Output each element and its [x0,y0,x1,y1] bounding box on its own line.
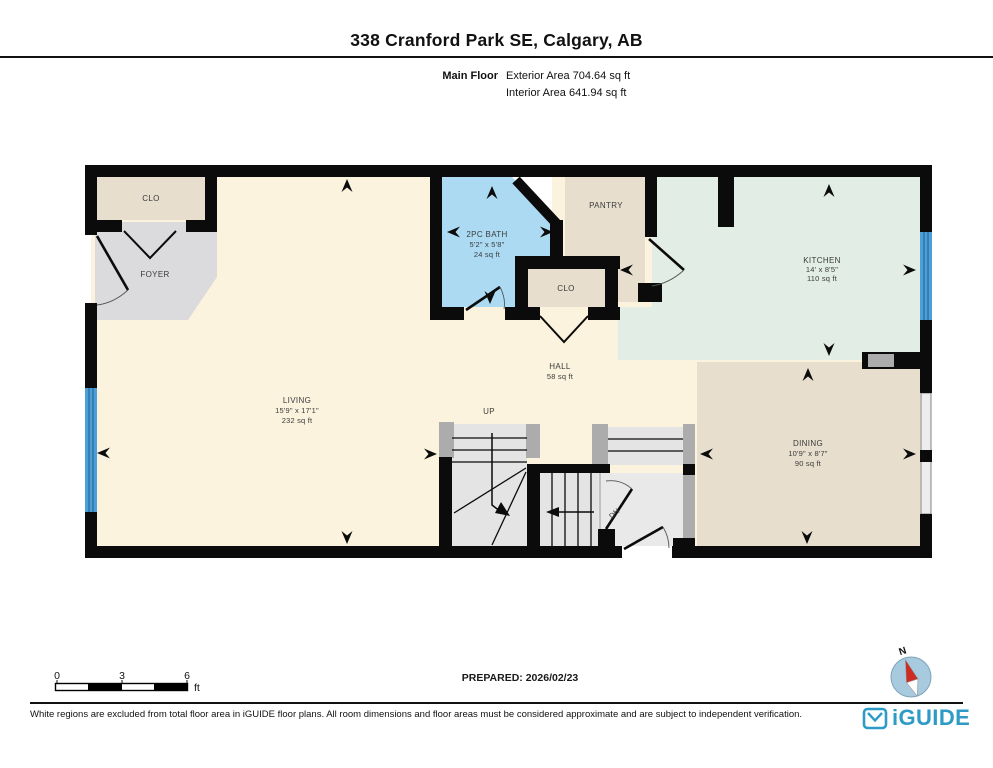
label-kitchen: KITCHEN [803,256,841,265]
svg-text:5'2" x 5'8": 5'2" x 5'8" [470,240,505,249]
window-living [85,388,97,512]
window-kitchen [920,232,932,320]
fireplace-block [868,354,894,367]
sliding-door-dining [920,393,932,514]
rear-door-opening [622,546,672,558]
svg-text:58 sq ft: 58 sq ft [547,372,574,381]
svg-text:10'9" x 8'7": 10'9" x 8'7" [788,449,827,458]
label-pantry: PANTRY [589,201,623,210]
scale-unit-label: ft [194,682,200,694]
label-dining: DINING [793,439,823,448]
iguide-box-icon [862,706,888,730]
svg-text:110 sq ft: 110 sq ft [807,274,838,283]
iguide-logo: iGUIDE [862,705,970,731]
footer-divider [30,702,963,704]
label-living: LIVING [283,396,311,405]
prepared-date: PREPARED: 2026/02/23 [462,672,579,684]
scale-bar: 0 3 6 ft [54,670,200,694]
svg-text:232 sq ft: 232 sq ft [282,416,313,425]
label-closet-entry: CLO [142,194,160,203]
label-closet-hall: CLO [557,284,575,293]
label-hall: HALL [549,362,571,371]
label-stairs-up: UP [483,407,495,416]
disclaimer-text: White regions are excluded from total fl… [30,709,850,720]
north-label: N [898,645,908,658]
floor-plan: CLO FOYER 2PC BATH 5'2" x 5'8" 24 sq ft … [0,0,993,768]
svg-text:14' x 8'5": 14' x 8'5" [806,265,838,274]
svg-text:24 sq ft: 24 sq ft [474,250,501,259]
svg-text:15'9" x 17'1": 15'9" x 17'1" [275,406,319,415]
svg-text:90 sq ft: 90 sq ft [795,459,822,468]
label-foyer: FOYER [140,270,169,279]
label-bath: 2PC BATH [466,230,507,239]
room-kitchen [618,177,920,360]
iguide-logo-text: iGUIDE [892,705,970,731]
compass-icon: N [891,645,931,698]
